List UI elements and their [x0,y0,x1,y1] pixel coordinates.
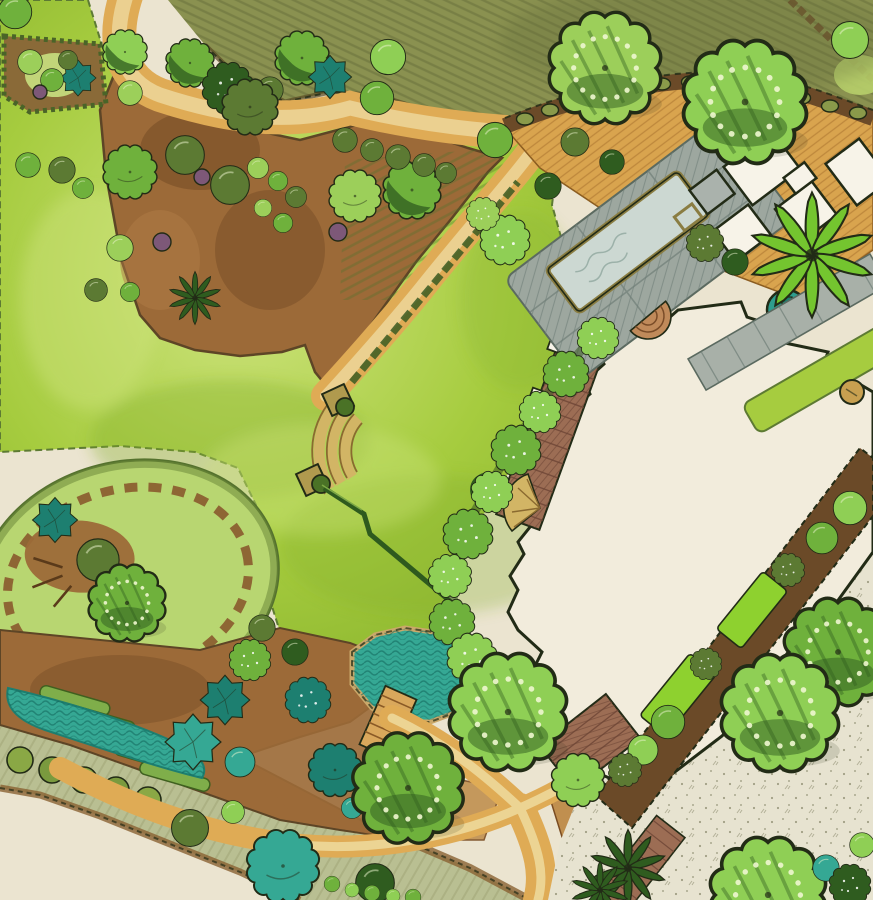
tree-teal [308,55,351,98]
clipped-shrub [833,491,866,524]
tree [832,22,869,59]
tree [360,81,393,114]
specimen-tree [684,41,808,164]
landscape-plan-canvas [0,0,873,900]
specimen-tree [449,653,567,770]
specimen-tree [353,733,465,843]
clipped-shrub [651,705,684,738]
specimen-tree [721,654,839,771]
boulder [840,380,864,404]
clipped-shrub [806,522,838,554]
specimen-tree [549,12,662,123]
tree [370,39,405,74]
tree [477,122,512,157]
